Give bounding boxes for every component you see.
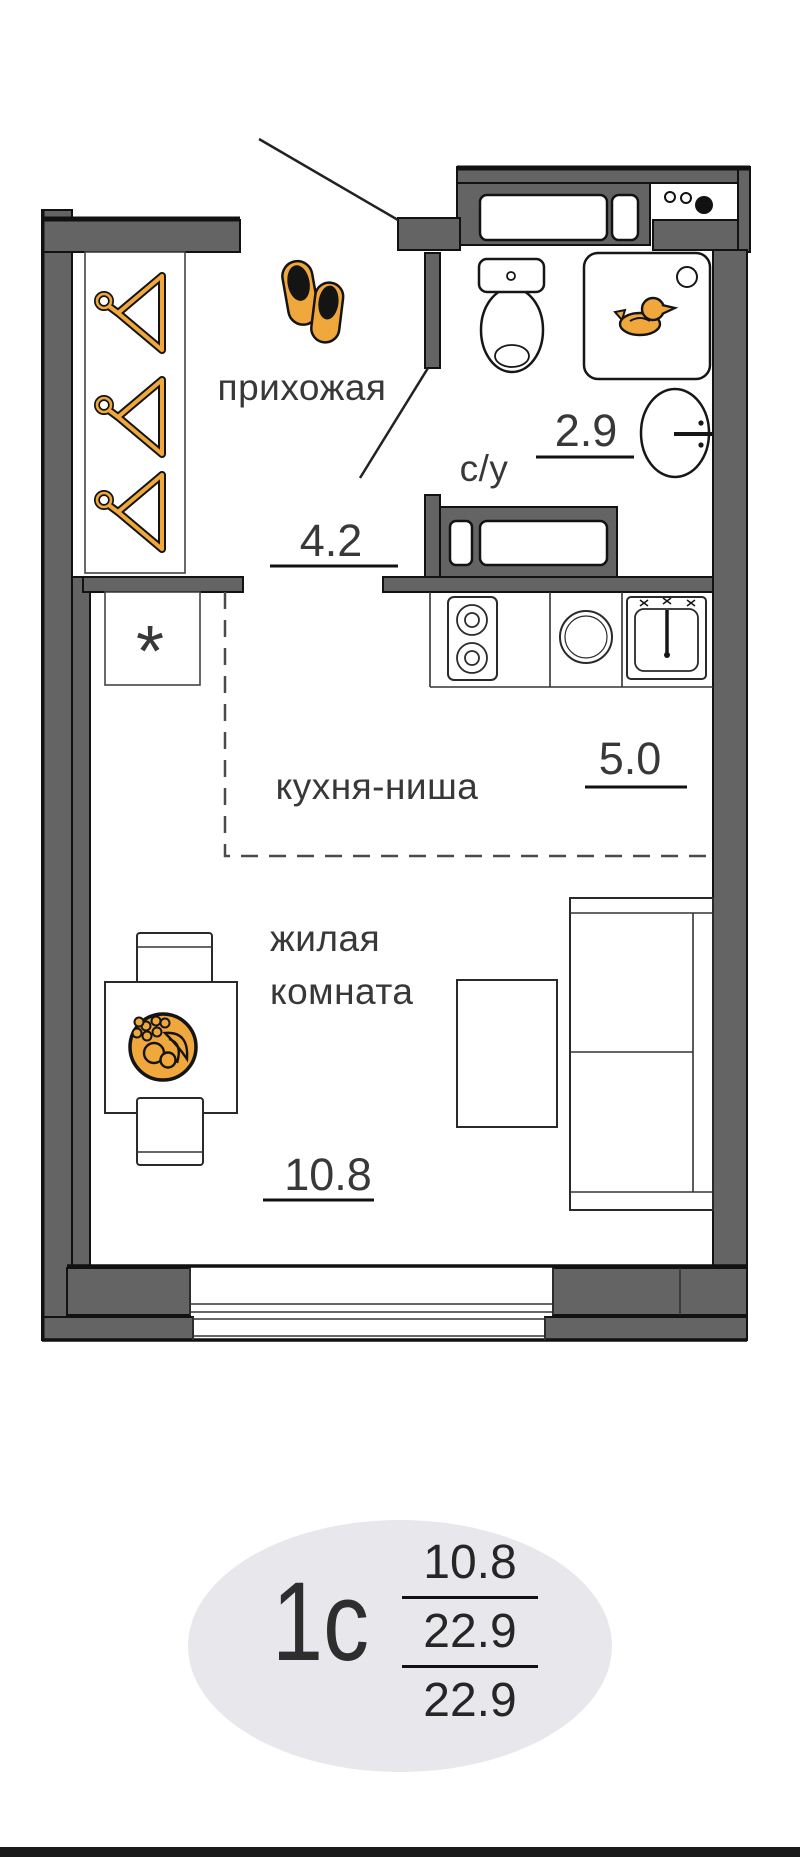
toilet [479, 259, 544, 372]
fridge-area: * [105, 592, 200, 692]
plumbing-risers [665, 192, 713, 214]
stove [448, 597, 497, 680]
unit-type-label: 1с [272, 1566, 369, 1678]
kitchen-area: 5.0 [599, 733, 662, 784]
badge-total-area: 22.9 [402, 1668, 538, 1734]
bottom-edge-bar [0, 1847, 800, 1857]
window [190, 1268, 553, 1340]
unit-badge: 1с 10.8 22.9 22.9 [188, 1520, 612, 1772]
dining-table [105, 933, 237, 1165]
hallway-label: прихожая [218, 367, 387, 408]
living-room-label-line2: комната [270, 971, 413, 1012]
fridge-asterisk: * [136, 612, 164, 692]
washing-machine [560, 611, 612, 663]
desk [457, 980, 557, 1127]
entrance-door [480, 195, 638, 240]
bed [570, 898, 713, 1210]
badge-living-area: 10.8 [402, 1530, 538, 1599]
area-fraction: 10.8 22.9 22.9 [402, 1530, 538, 1734]
bathroom-sink [641, 389, 712, 477]
shower [584, 253, 710, 379]
slippers-icon [280, 259, 345, 344]
closet [85, 252, 185, 573]
kitchen-sink [627, 597, 706, 679]
entrance-door-swing-line [259, 139, 398, 220]
bathroom-area: 2.9 [555, 405, 618, 456]
floor-plan-page: * прихожая 4.2 [0, 0, 800, 1857]
hallway-area: 4.2 [300, 515, 363, 566]
bathroom-label: с/у [460, 448, 509, 489]
badge-middle-area: 22.9 [402, 1599, 538, 1668]
living-room-area: 10.8 [284, 1149, 372, 1200]
kitchen-label: кухня-ниша [276, 766, 479, 807]
floor-plan: * прихожая 4.2 [0, 0, 800, 1420]
living-room-label-line1: жилая [270, 918, 380, 959]
fruit-bowl-icon [130, 1014, 196, 1080]
kitchen-counter [430, 592, 713, 687]
